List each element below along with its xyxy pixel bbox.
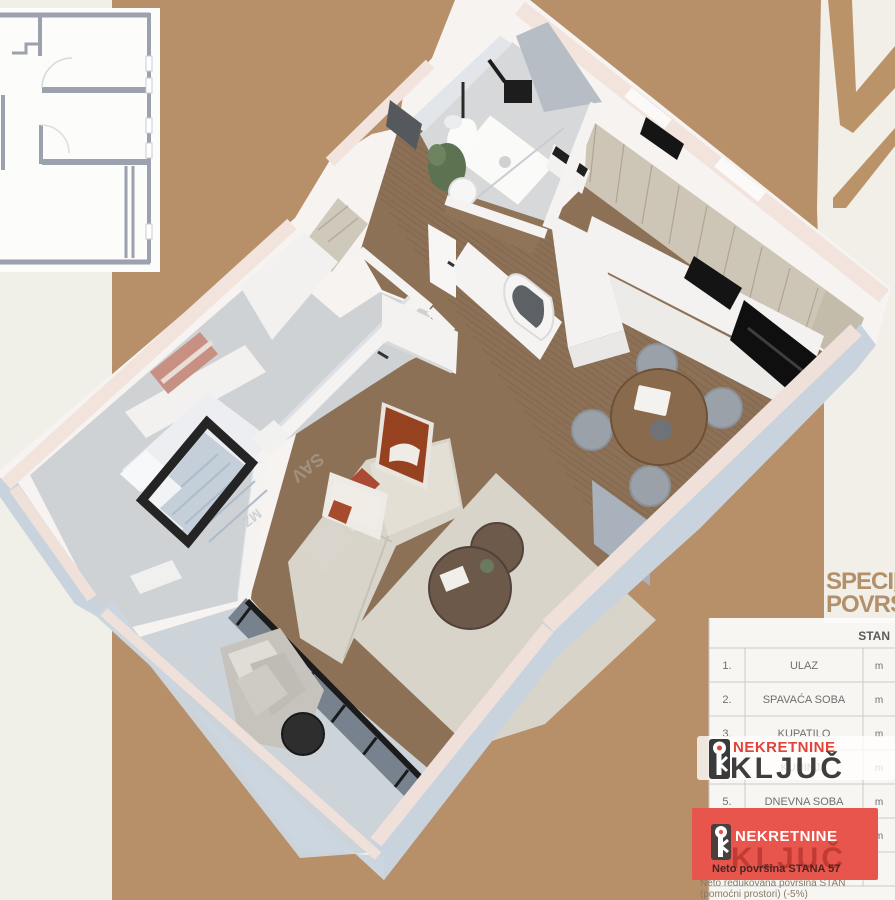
svg-text:m: m — [875, 797, 883, 808]
svg-text:m: m — [875, 661, 883, 672]
svg-text:(pomoćni prostori) (-5%): (pomoćni prostori) (-5%) — [700, 889, 808, 900]
svg-text:Neto površina STANA 57: Neto površina STANA 57 — [712, 863, 840, 875]
svg-text:SPAVAĆA SOBA: SPAVAĆA SOBA — [763, 693, 846, 706]
svg-text:KLJUČ: KLJUČ — [730, 751, 845, 785]
svg-text:m: m — [875, 695, 883, 706]
svg-text:POVRŠINA: POVRŠINA — [826, 590, 895, 618]
svg-text:2.: 2. — [722, 694, 731, 706]
svg-text:ULAZ: ULAZ — [790, 660, 818, 672]
svg-text:5.: 5. — [722, 796, 731, 808]
svg-text:1.: 1. — [722, 660, 731, 672]
svg-text:DNEVNA SOBA: DNEVNA SOBA — [765, 796, 845, 808]
svg-text:STAN: STAN — [858, 629, 890, 643]
svg-text:Neto redukovana površina STAN: Neto redukovana površina STAN — [700, 878, 845, 889]
